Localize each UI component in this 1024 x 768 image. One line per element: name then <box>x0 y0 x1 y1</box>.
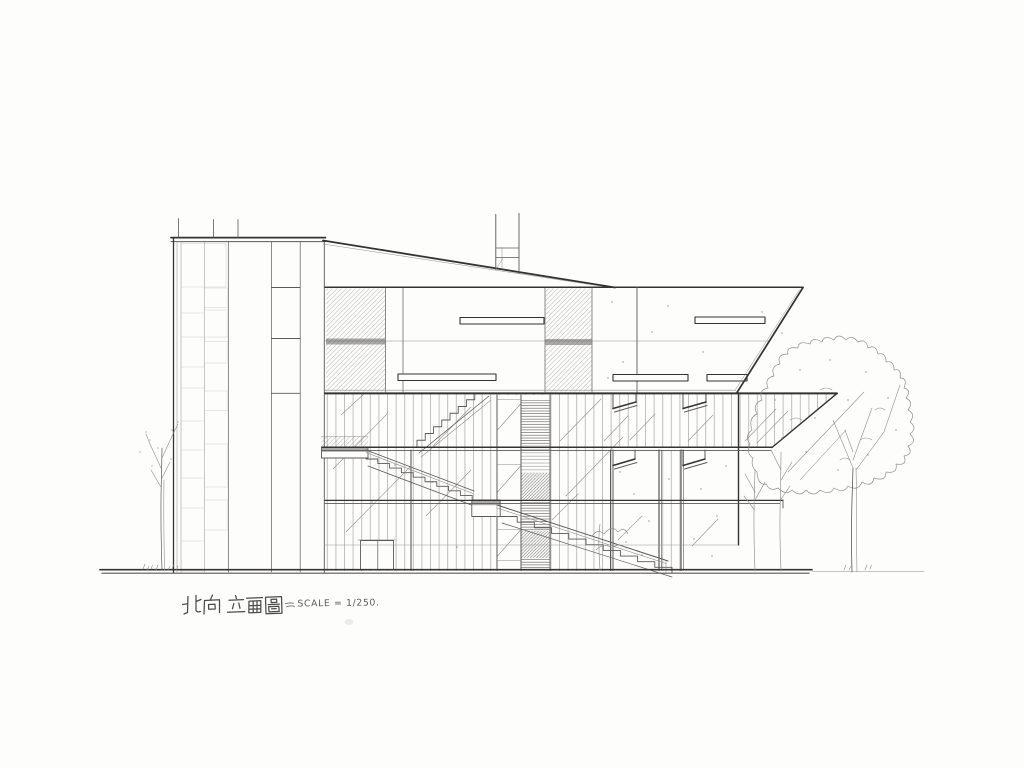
entry-door <box>358 540 395 570</box>
paper-smudge <box>345 619 354 625</box>
paper-background <box>0 0 1024 768</box>
louver-column <box>522 400 550 571</box>
elevation-drawing: SCALE = 1/250. <box>0 0 1024 768</box>
scale-label: SCALE = 1/250. <box>297 597 379 609</box>
sketch-page: 北向 立面圖 <box>0 0 1024 768</box>
stair-mid-landing <box>472 500 500 517</box>
